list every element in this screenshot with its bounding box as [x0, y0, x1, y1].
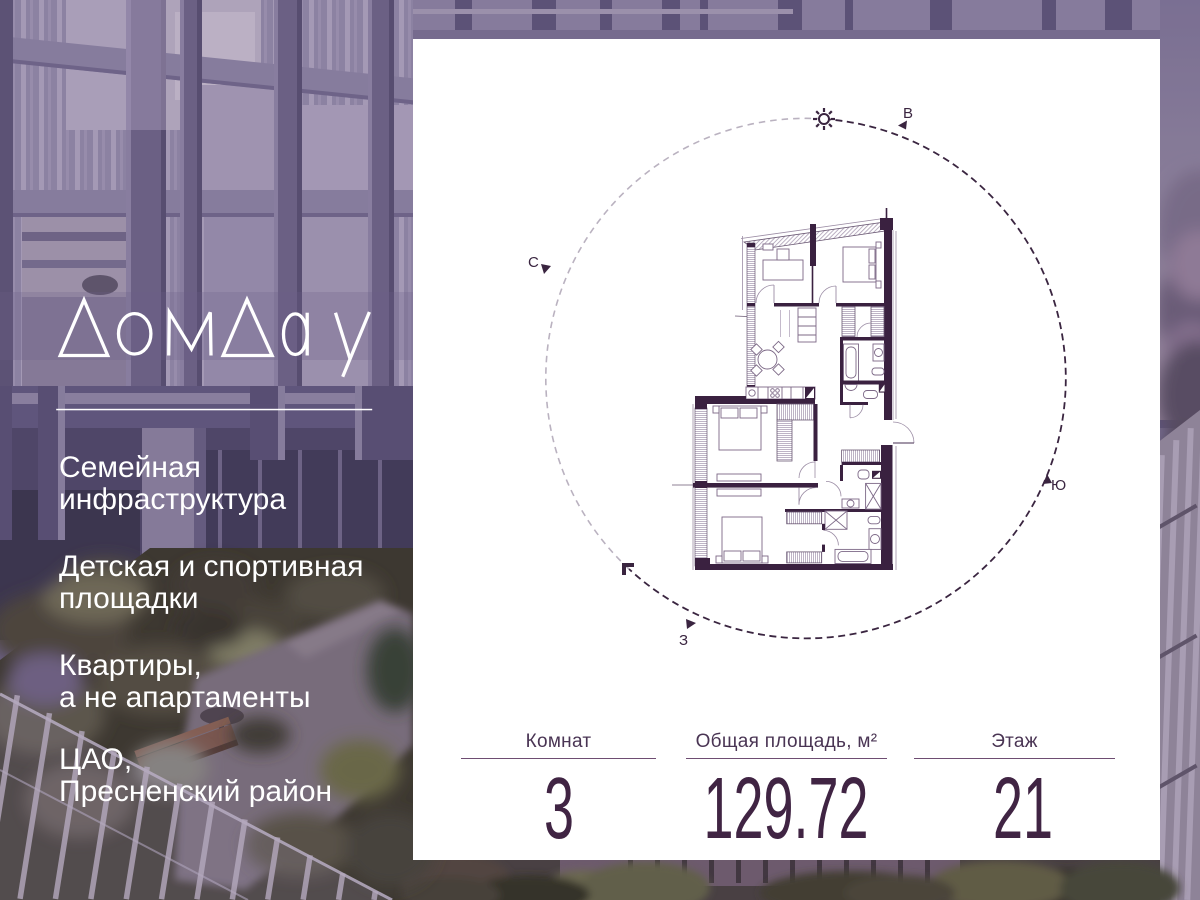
svg-text:З: З	[679, 632, 688, 649]
svg-text:В: В	[903, 105, 913, 122]
svg-text:С: С	[528, 254, 539, 271]
svg-text:Ю: Ю	[1051, 477, 1066, 494]
